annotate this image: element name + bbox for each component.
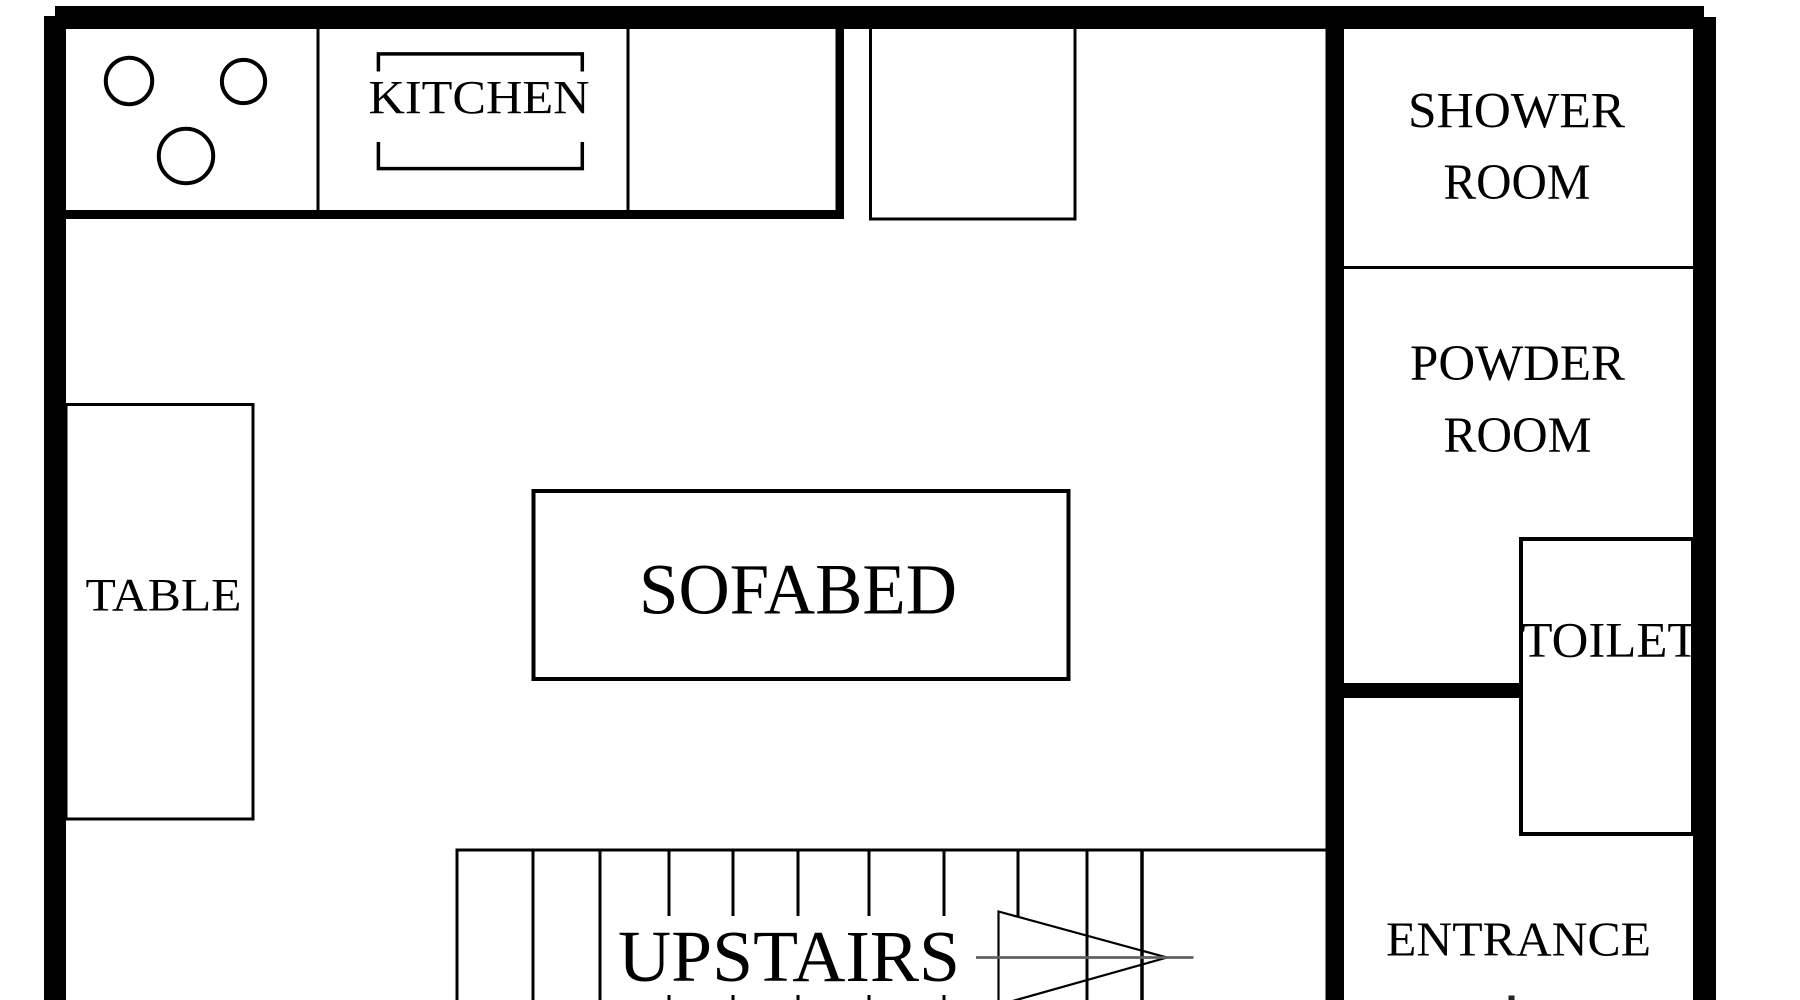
svg-text:POWDER: POWDER [1410,336,1625,392]
svg-text:UPSTAIRS: UPSTAIRS [618,916,960,997]
svg-text:TABLE: TABLE [86,570,242,622]
svg-text:ROOM: ROOM [1444,155,1591,211]
svg-text:ROOM: ROOM [1444,408,1592,464]
svg-text:KITCHEN: KITCHEN [369,72,590,125]
svg-text:SOFABED: SOFABED [639,549,957,630]
svg-text:SHOWER: SHOWER [1408,84,1625,140]
svg-text:ENTRANCE: ENTRANCE [1386,912,1651,967]
svg-text:TOILET: TOILET [1522,612,1699,668]
